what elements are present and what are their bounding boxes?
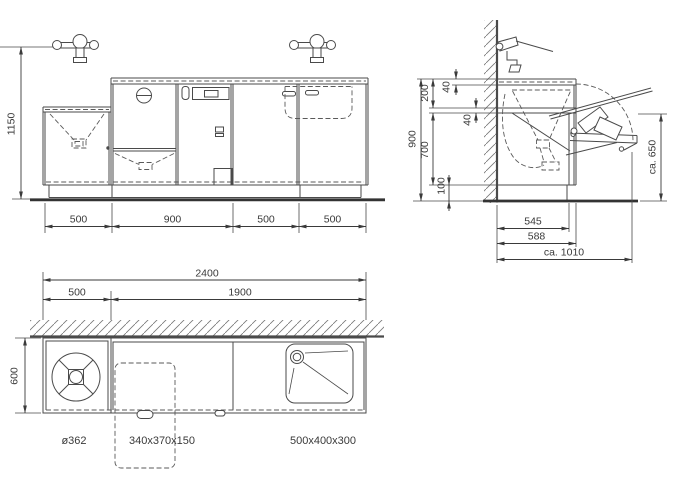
handle-symbol xyxy=(215,411,225,417)
side-dimensions-left: 900 200 700 40 40 100 xyxy=(407,69,498,211)
dim-label-200: 200 xyxy=(419,84,431,102)
dim-label-700: 700 xyxy=(419,141,431,159)
knob-dot xyxy=(106,146,109,149)
rect-sink-top-symbol xyxy=(286,344,353,403)
dim-label-900: 900 xyxy=(407,130,419,148)
plan-main-module xyxy=(46,338,366,468)
technical-drawing-canvas: 1150 500 900 500 500 xyxy=(0,0,680,496)
tipping-sink-compartment xyxy=(113,88,176,170)
door-handle xyxy=(283,92,296,97)
side-carcass xyxy=(483,79,638,201)
dim-label-600: 600 xyxy=(9,367,21,385)
label-round-bowl: ø362 xyxy=(61,435,86,447)
dim-label-w4: 500 xyxy=(324,214,342,226)
plan-labels: ø362 340x370x150 500x400x300 xyxy=(61,435,356,447)
hidden-funnel-outline xyxy=(50,114,104,148)
front-elevation-view: 1150 500 900 500 500 xyxy=(0,35,385,234)
handle-symbol xyxy=(137,411,153,419)
faucet-front-right-icon xyxy=(290,35,336,63)
dim-label-500: 500 xyxy=(68,287,86,299)
side-section-view: 900 200 700 40 40 100 ca. 650 xyxy=(407,20,668,263)
side-dimension-foldout: ca. 650 xyxy=(638,114,667,201)
control-lever-symbol xyxy=(182,87,189,100)
dim-label-ca1010: ca. 1010 xyxy=(544,247,584,259)
control-panel-symbol xyxy=(193,88,230,100)
cabinet-doors xyxy=(283,87,353,119)
dim-label-w3: 500 xyxy=(257,214,275,226)
vent-symbol xyxy=(216,127,224,132)
hidden-basin-section-outline xyxy=(502,90,571,170)
round-bowl-top-symbol xyxy=(52,353,100,401)
dim-label-w2: 900 xyxy=(164,214,182,226)
bedpan-holder-symbol xyxy=(549,88,653,140)
front-left-module xyxy=(43,107,111,185)
plinth-and-floor xyxy=(30,185,385,200)
wall-hatch xyxy=(30,320,384,336)
service-hatch-symbol xyxy=(214,169,232,186)
dim-label-ca650: ca. 650 xyxy=(647,140,659,175)
dim-label-40a: 40 xyxy=(441,81,453,93)
sink-unit-drawing: 1150 500 900 500 500 xyxy=(0,0,680,496)
faucet-front-left-icon xyxy=(0,35,99,63)
wall-hatch xyxy=(484,20,497,203)
plan-left-module xyxy=(43,338,111,413)
dim-label-100: 100 xyxy=(436,177,448,195)
door-handle xyxy=(306,91,319,96)
label-basin: 500x400x300 xyxy=(290,435,356,447)
dim-label-40b: 40 xyxy=(462,114,474,126)
faucet-side-icon xyxy=(496,37,553,72)
dim-label-2400: 2400 xyxy=(195,268,219,280)
dim-label-1900: 1900 xyxy=(228,287,252,299)
front-dimensions: 1150 500 900 500 500 xyxy=(6,47,367,233)
label-tipping-sink: 340x370x150 xyxy=(129,435,195,447)
dim-label-height: 1150 xyxy=(6,113,18,136)
dim-label-588: 588 xyxy=(528,231,546,243)
plan-view: 2400 500 1900 600 ø362 340x370x150 500x4… xyxy=(9,268,385,469)
side-dimensions-bottom: 545 588 ca. 1010 xyxy=(497,152,632,263)
dim-label-545: 545 xyxy=(524,216,542,228)
control-column xyxy=(182,87,232,186)
dim-label-w1: 500 xyxy=(70,214,88,226)
